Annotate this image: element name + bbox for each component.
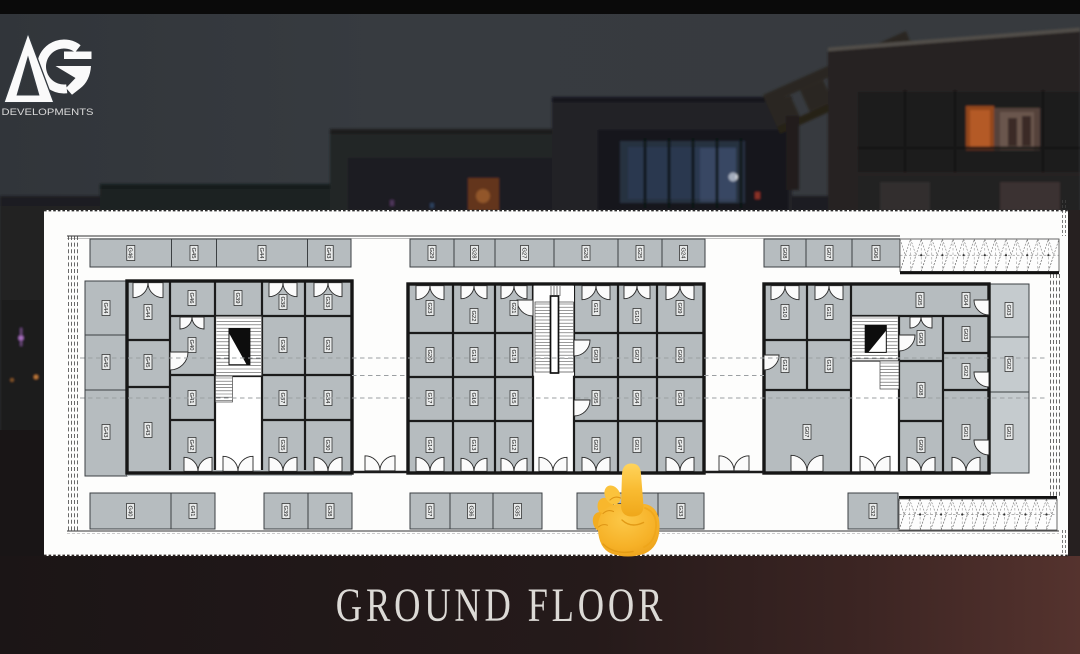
svg-text:G38: G38	[279, 297, 285, 308]
svg-text:G01: G01	[962, 427, 968, 438]
svg-text:G07: G07	[825, 248, 831, 259]
svg-text:G12: G12	[781, 360, 787, 371]
svg-text:G09: G09	[676, 303, 682, 314]
svg-text:G21: G21	[510, 303, 516, 314]
svg-text:G36: G36	[467, 506, 473, 517]
svg-text:G43: G43	[144, 425, 150, 436]
svg-text:G11: G11	[592, 303, 598, 314]
svg-text:G01: G01	[633, 440, 639, 451]
svg-text:G26: G26	[582, 248, 588, 259]
svg-text:G08: G08	[592, 350, 598, 361]
svg-text:G46: G46	[127, 248, 133, 259]
svg-text:G19: G19	[470, 350, 476, 361]
svg-text:G10: G10	[781, 307, 787, 318]
svg-text:G14: G14	[426, 440, 432, 452]
svg-text:G30: G30	[324, 440, 330, 451]
svg-text:G44: G44	[258, 248, 264, 260]
svg-text:G43: G43	[102, 427, 108, 438]
svg-text:G09: G09	[917, 440, 923, 451]
svg-text:G44: G44	[102, 303, 108, 315]
svg-text:G27: G27	[520, 248, 526, 259]
svg-text:G37: G37	[426, 506, 432, 517]
svg-text:G11: G11	[825, 307, 831, 318]
svg-text:G47: G47	[676, 440, 682, 451]
svg-text:G04: G04	[962, 295, 968, 307]
svg-text:G39: G39	[282, 506, 288, 517]
svg-text:G44: G44	[144, 307, 150, 319]
svg-text:G45: G45	[190, 248, 196, 259]
svg-text:G01: G01	[1005, 427, 1011, 438]
svg-text:G35: G35	[513, 506, 519, 517]
svg-text:G29: G29	[428, 248, 434, 259]
svg-text:G39: G39	[234, 293, 240, 304]
svg-text:G05: G05	[916, 295, 922, 306]
svg-text:G25: G25	[636, 248, 642, 259]
svg-text:G23: G23	[426, 303, 432, 314]
svg-text:G13: G13	[470, 440, 476, 451]
svg-text:G06: G06	[676, 350, 682, 361]
svg-text:G13: G13	[825, 360, 831, 371]
svg-text:G10: G10	[633, 311, 639, 322]
svg-text:G36: G36	[279, 340, 285, 351]
svg-text:G32: G32	[869, 506, 875, 517]
svg-text:G18: G18	[510, 350, 516, 361]
svg-text:G40: G40	[126, 506, 132, 517]
svg-text:G08: G08	[781, 248, 787, 259]
svg-text:G43: G43	[325, 248, 331, 259]
svg-text:G02: G02	[592, 440, 598, 451]
svg-text:G38: G38	[326, 506, 332, 517]
svg-text:G02: G02	[1005, 359, 1011, 370]
svg-text:G06: G06	[872, 248, 878, 259]
svg-text:G35: G35	[279, 440, 285, 451]
svg-text:G07: G07	[803, 427, 809, 438]
svg-text:DEVELOPMENTS: DEVELOPMENTS	[2, 107, 94, 118]
svg-text:G41: G41	[189, 506, 195, 517]
svg-text:G40: G40	[188, 340, 194, 351]
svg-text:G46: G46	[188, 293, 194, 304]
svg-text:G33: G33	[677, 506, 683, 517]
svg-text:G33: G33	[324, 297, 330, 308]
svg-text:G12: G12	[510, 440, 516, 451]
svg-text:G28: G28	[470, 248, 476, 259]
svg-text:G03: G03	[1005, 305, 1011, 316]
svg-text:G42: G42	[188, 440, 194, 451]
svg-text:G07: G07	[633, 350, 639, 361]
svg-text:G08: G08	[917, 385, 923, 396]
svg-text:G22: G22	[470, 311, 476, 322]
svg-text:G20: G20	[426, 350, 432, 361]
svg-text:G24: G24	[679, 248, 685, 260]
svg-text:G32: G32	[324, 340, 330, 351]
svg-text:G06: G06	[917, 333, 923, 344]
svg-text:G02: G02	[962, 366, 968, 377]
svg-text:G03: G03	[962, 329, 968, 340]
